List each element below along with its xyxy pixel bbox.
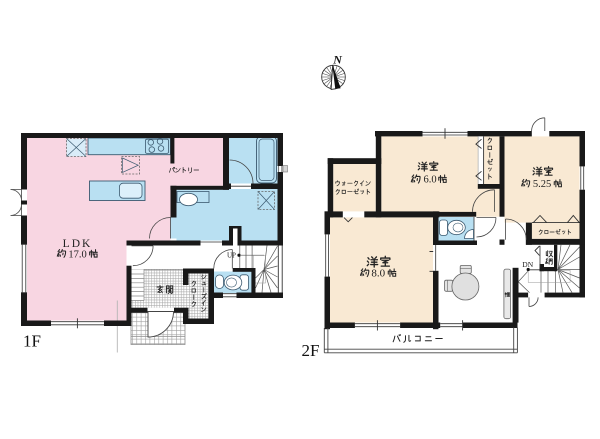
svg-text:6.0: 6.0 [423,174,436,185]
svg-text:N: N [332,53,343,67]
svg-text:2F: 2F [302,341,320,360]
svg-text:DN: DN [522,260,533,269]
svg-text:8.0: 8.0 [371,268,385,280]
svg-text:1F: 1F [23,332,41,351]
svg-text:5.25: 5.25 [533,179,551,190]
svg-text:17.0: 17.0 [68,249,86,260]
svg-text:LDK: LDK [63,238,93,250]
svg-text:UP: UP [227,252,236,260]
